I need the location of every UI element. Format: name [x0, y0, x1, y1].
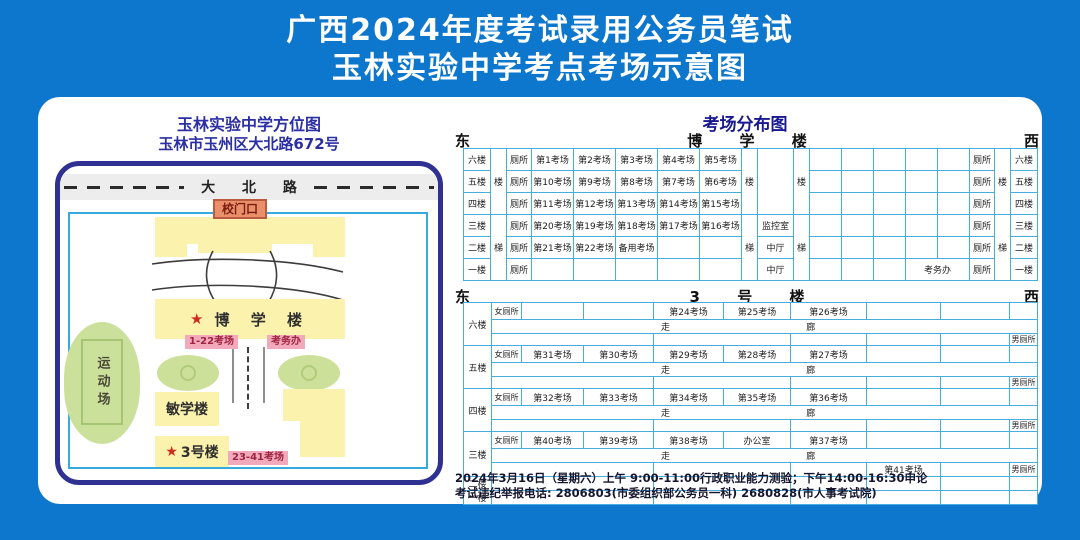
exam-room-cell: 第29考场: [654, 346, 724, 363]
building3-label: 3号楼: [181, 442, 219, 462]
floor-label: 二楼: [1011, 237, 1038, 259]
exam-room-cell: 第32考场: [522, 389, 584, 406]
exam-room-cell: [1010, 303, 1038, 320]
exam-room-cell: 第40考场: [522, 432, 584, 449]
exam-room-cell: 第26考场: [791, 303, 867, 320]
exam-room-cell: 第8考场: [616, 171, 658, 193]
exam-info: 2024年3月16日（星期六）上午 9:00-11:00行政职业能力测验；下午1…: [455, 471, 1041, 501]
boxue-star-icon: ★: [190, 310, 211, 328]
floor-label: 五楼: [1011, 171, 1038, 193]
exam-room-cell: 第18考场: [616, 215, 658, 237]
exam-room-cell: 第25考场: [724, 303, 791, 320]
toilet-cell: 厕所: [970, 171, 995, 193]
map-address: 玉林市玉州区大北路672号: [55, 133, 443, 154]
exam-room-cell: 第9考场: [574, 171, 616, 193]
lawn-left: [157, 355, 219, 391]
exam-room-cell: [941, 303, 1010, 320]
road-dabeilu: 大 北 路: [60, 174, 438, 200]
toilet-cell: 厕所: [970, 149, 995, 171]
boxue-building: ★ 博 学 楼: [155, 299, 345, 339]
content-panel: 玉林实验中学方位图 玉林市玉州区大北路672号 大 北 路 校门口: [38, 97, 1042, 504]
floor-label: 二楼: [464, 237, 491, 259]
exam-room-cell: 第12考场: [574, 193, 616, 215]
east-building-lower: [300, 421, 345, 457]
stair-cell: 梯: [742, 215, 758, 281]
exam-room-cell: 第16考场: [700, 215, 742, 237]
building3-rooms-tag: 23-41考场: [228, 451, 288, 465]
stair-cell: 楼: [742, 149, 758, 215]
exam-room-cell: 第13考场: [616, 193, 658, 215]
stair-cell: 梯: [794, 215, 810, 281]
poster-title-line2: 玉林实验中学考点考场示意图: [0, 50, 1080, 88]
stair-cell: 梯: [995, 215, 1011, 281]
floor-label: 四楼: [464, 389, 492, 432]
office-cell: 办公室: [724, 432, 791, 449]
lawn-right: [278, 355, 340, 391]
exam-room-cell: 第1考场: [532, 149, 574, 171]
floor-label: 三楼: [1011, 215, 1038, 237]
floor-label: 一楼: [464, 259, 491, 281]
boxue-building-label: 博 学 楼: [215, 309, 310, 330]
exam-room-cell: 第21考场: [532, 237, 574, 259]
exam-room-cell: 第38考场: [654, 432, 724, 449]
exam-room-cell: 第31考场: [522, 346, 584, 363]
campus-map: 大 北 路 校门口 ★: [55, 161, 443, 485]
road-dash-left: [64, 186, 184, 189]
stair-cell: 楼: [995, 149, 1011, 215]
exam-room-cell: 第24考场: [654, 303, 724, 320]
corridor-cell: 走廊: [492, 406, 1038, 420]
road-name: 大 北 路: [190, 177, 308, 197]
exam-room-cell: 第34考场: [654, 389, 724, 406]
road-line-right: [263, 347, 265, 403]
exam-schedule-line: 2024年3月16日（星期六）上午 9:00-11:00行政职业能力测验；下午1…: [455, 471, 1041, 486]
boxue-rooms-tag: 1-22考场: [185, 335, 238, 349]
toilet-cell: 厕所: [970, 215, 995, 237]
toilet-cell: 厕所: [970, 259, 995, 281]
toilet-cell: 厕所: [970, 237, 995, 259]
hall-cell: 中厅: [758, 259, 794, 281]
sports-field: 运动场: [64, 322, 140, 444]
monitor-room-cell: 监控室: [758, 215, 794, 237]
exam-room-cell: 第6考场: [700, 171, 742, 193]
exam-room-cell: 第36考场: [791, 389, 867, 406]
exam-room-cell: 第37考场: [791, 432, 867, 449]
lawn-right-feature: [301, 365, 317, 381]
exam-room-cell: 第39考场: [584, 432, 654, 449]
minxue-building: 敏学楼: [155, 392, 219, 426]
exam-room-cell: 第28考场: [724, 346, 791, 363]
minxue-building-label: 敏学楼: [155, 392, 219, 426]
map-title: 玉林实验中学方位图: [55, 111, 443, 135]
toilet-cell: 厕所: [507, 259, 532, 281]
exam-room-cell: 第15考场: [700, 193, 742, 215]
exam-room-cell: 第33考场: [584, 389, 654, 406]
floor-label: 四楼: [464, 193, 491, 215]
women-toilet-cell: 女厕所: [492, 389, 522, 406]
exam-room-cell: 第19考场: [574, 215, 616, 237]
exam-room-cell: 备用考场: [616, 237, 658, 259]
campus-boundary: ★ 博 学 楼 1-22考场 考务办 运动场: [68, 212, 428, 469]
floor-label: 五楼: [464, 171, 491, 193]
floor-label: 六楼: [1011, 149, 1038, 171]
exam-room-cell: [584, 303, 654, 320]
stair-cell: 楼: [794, 149, 810, 215]
exam-office-tag: 考务办: [267, 335, 305, 349]
floor-label: 六楼: [464, 303, 492, 346]
exam-room-cell: 第5考场: [700, 149, 742, 171]
floor-label: 三楼: [464, 215, 491, 237]
floor-label: 六楼: [464, 149, 491, 171]
exam-room-cell: 第2考场: [574, 149, 616, 171]
women-toilet-cell: 女厕所: [492, 432, 522, 449]
road-centerline: [247, 347, 249, 409]
women-toilet-cell: 女厕所: [492, 346, 522, 363]
exam-room-cell: 第22考场: [574, 237, 616, 259]
stair-cell: 梯: [491, 215, 507, 281]
men-toilet-cell: 男厕所: [1010, 377, 1038, 389]
road-line-left: [232, 347, 234, 403]
boxue-floor-table: 六楼 楼 厕所 第1考场 第2考场 第3考场 第4考场 第5考场 楼 楼 厕所 …: [463, 148, 1038, 281]
poster-title: 广西2024年度考试录用公务员笔试 玉林实验中学考点考场示意图: [0, 12, 1080, 88]
lawn-left-feature: [180, 365, 196, 381]
exam-room-cell: [867, 303, 941, 320]
toilet-cell: 厕所: [507, 149, 532, 171]
toilet-cell: 厕所: [507, 237, 532, 259]
poster-title-line1: 广西2024年度考试录用公务员笔试: [0, 12, 1080, 50]
hall-cell: [758, 149, 794, 215]
corridor-cell: 走廊: [492, 363, 1038, 377]
path-curves: [150, 249, 345, 305]
men-toilet-cell: 男厕所: [1010, 334, 1038, 346]
exam-room-cell: 第30考场: [584, 346, 654, 363]
exam-room-cell: 第20考场: [532, 215, 574, 237]
men-toilet-cell: 男厕所: [1010, 420, 1038, 432]
toilet-cell: 厕所: [507, 215, 532, 237]
floor-label: 一楼: [1011, 259, 1038, 281]
floor-label: 三楼: [464, 432, 492, 477]
exam-room-cell: 第27考场: [791, 346, 867, 363]
stair-cell: 楼: [491, 149, 507, 215]
exam-poster: 广西2024年度考试录用公务员笔试 玉林实验中学考点考场示意图 玉林实验中学方位…: [0, 0, 1080, 540]
corridor-cell: 走廊: [492, 449, 1038, 463]
exam-room-cell: 第11考场: [532, 193, 574, 215]
road-dash-right: [314, 186, 434, 189]
front-building: [155, 217, 345, 244]
exam-room-cell: 第3考场: [616, 149, 658, 171]
exam-room-cell: 第35考场: [724, 389, 791, 406]
exam-room-cell: 第4考场: [658, 149, 700, 171]
exam-room-cell: 第14考场: [658, 193, 700, 215]
building3: ★ 3号楼: [155, 436, 229, 467]
toilet-cell: 厕所: [970, 193, 995, 215]
sports-field-label: 运动场: [93, 356, 112, 410]
exam-room-cell: 第7考场: [658, 171, 700, 193]
floor-label: 五楼: [464, 346, 492, 389]
women-toilet-cell: 女厕所: [492, 303, 522, 320]
report-hotline-line: 考试违纪举报电话: 2806803(市委组织部公务员一科) 2680828(市人…: [455, 486, 1041, 501]
exam-room-cell: 第17考场: [658, 215, 700, 237]
floor-label: 四楼: [1011, 193, 1038, 215]
hall-cell: 中厅: [758, 237, 794, 259]
east-building-upper: [283, 389, 345, 421]
toilet-cell: 厕所: [507, 171, 532, 193]
toilet-cell: 厕所: [507, 193, 532, 215]
building3-star-icon: ★: [165, 444, 178, 460]
exam-office-cell: 考务办: [906, 259, 970, 281]
exam-room-cell: 第10考场: [532, 171, 574, 193]
corridor-cell: 走廊: [492, 320, 1038, 334]
school-gate-label: 校门口: [213, 199, 267, 219]
exam-room-cell: [522, 303, 584, 320]
